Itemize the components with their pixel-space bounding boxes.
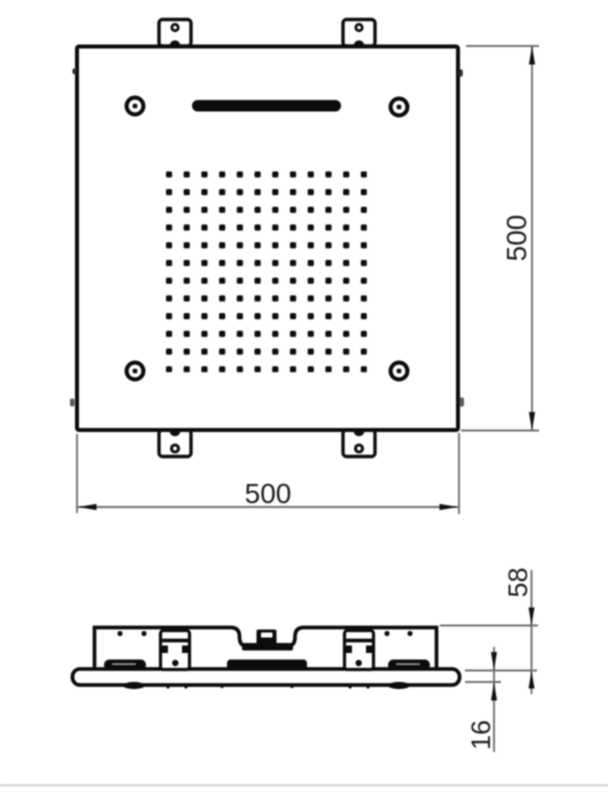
svg-text:500: 500 [245,478,292,509]
svg-text:58: 58 [503,567,533,597]
svg-text:16: 16 [466,720,496,750]
svg-text:500: 500 [501,215,532,262]
